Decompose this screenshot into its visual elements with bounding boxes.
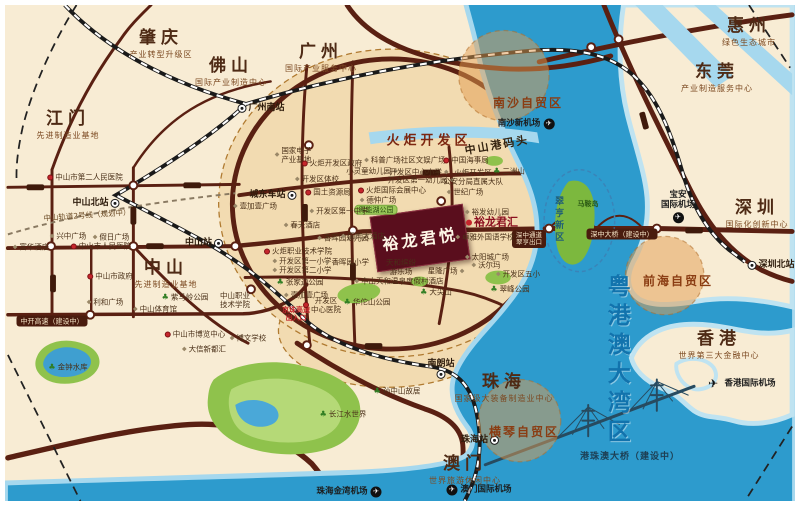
place-diamond-icon: ◆ [360, 197, 365, 203]
area-title: 马鞍岛 [578, 200, 599, 208]
station-marker: 中山站 [185, 238, 223, 248]
station-name: 珠海站 [461, 435, 488, 445]
station-marker: 城东车站 [249, 190, 296, 200]
poi-label: ◆裕发幼儿园 [465, 208, 509, 217]
place-diamond-icon: ◆ [284, 222, 289, 228]
poi-name: 世纪广场 [453, 188, 483, 197]
train-station-icon [214, 239, 223, 248]
poi-name: 孙中山故居 [383, 387, 421, 396]
road-banner: 中开高速（建设中） [17, 315, 88, 326]
poi-name: 德仲广场 [366, 196, 396, 205]
city-label: 东莞产业制造服务中心 [681, 63, 753, 93]
poi-name: 壹加壹广场 [291, 291, 329, 300]
poi-label: 火炬国际会展中心 [358, 186, 426, 195]
city-tagline: 国家级大装备制造业中心 [455, 394, 554, 403]
poi-label: 中山市人民医院 [71, 242, 132, 251]
ftz-label: 横琴自贸区 [489, 426, 559, 440]
city-tagline: 国际产业制造中心 [195, 78, 267, 87]
poi-name: 兴中广场 [56, 232, 86, 241]
poi-label: ◆博文学校 [230, 334, 267, 343]
poi-name: 国宾大酒店 [348, 232, 386, 241]
poi-label: ◆春天酒店 [284, 221, 321, 230]
city-tagline: 国际化创新中心 [726, 220, 789, 229]
station-marker: 深圳北站 [747, 260, 794, 270]
poi-name: 富华酒店 [19, 243, 49, 252]
city-name: 肇庆 [130, 29, 193, 49]
airport-marker: ✈香港国际机场 [704, 376, 775, 393]
poi-label: ◆开发区体校 [295, 175, 339, 184]
poi-label: ♣华佗山公园 [344, 298, 391, 307]
area-title: 翠亨新区 [553, 196, 563, 244]
area-title: 中山港码头 [464, 134, 530, 158]
place-diamond-icon: ◆ [309, 208, 314, 214]
poi-label: ◆国宾大酒店 [341, 232, 385, 241]
airplane-icon: ✈ [704, 376, 721, 393]
location-map: 裕龙君悦 裕龙君汇 肇庆产业转型升级区佛山国际产业制造中心广州国际产业服务中心江… [0, 0, 800, 506]
poi-label: ♣金钟水库 [48, 363, 87, 372]
city-label: 佛山国际产业制造中心 [195, 57, 267, 87]
poi-name: 裕发幼儿园 [472, 208, 510, 217]
place-diamond-icon: ◆ [465, 254, 470, 260]
poi-name: 开发区第一中学 [316, 207, 369, 216]
city-label: 深圳国际化创新中心 [726, 199, 789, 229]
park-icon: ♣ [420, 288, 427, 296]
poi-label: ◆卓雅外国语学校 [455, 233, 514, 242]
area-title: 火炬开发区 [386, 135, 471, 150]
poi-label: 火炬职业技术学院 [264, 247, 332, 256]
poi-name: 翠峰公园 [500, 285, 530, 294]
poi-label: ♣大尖山 [420, 288, 452, 297]
city-name: 东莞 [681, 63, 753, 83]
place-diamond-icon: ◆ [471, 262, 476, 268]
poi-label: 中山市博览中心 [165, 330, 226, 339]
poi-name: 紫马岭公园 [171, 293, 209, 302]
poi-name: 开发区体校 [302, 175, 340, 184]
city-name: 香港 [679, 330, 760, 350]
place-diamond-icon: ◆ [364, 157, 369, 163]
poi-name: 春天酒店 [290, 221, 320, 230]
city-tagline: 先进制造业基地 [135, 280, 198, 289]
poi-name: 壹加壹广场 [240, 202, 278, 211]
train-station-icon [111, 199, 120, 208]
hospital-gov-icon [47, 174, 53, 180]
airport-name-line: 国际机场 [661, 201, 695, 211]
poi-label: 星隆广场◆ [428, 267, 465, 276]
park-icon: ♣ [277, 278, 284, 286]
place-diamond-icon: ◆ [272, 267, 277, 273]
poi-label: ◆开发区五小 [496, 270, 540, 279]
place-diamond-icon: ◆ [354, 278, 359, 284]
place-diamond-icon: ◆ [233, 203, 238, 209]
poi-name: 大尖山 [429, 288, 452, 297]
hospital-gov-icon [443, 157, 449, 163]
place-diamond-icon: ◆ [275, 152, 280, 158]
place-diamond-icon: ◆ [182, 346, 187, 352]
place-diamond-icon: ◆ [455, 234, 460, 240]
poi-name: 开发区第一幼儿园 [388, 176, 448, 185]
city-label: 广州国际产业服务中心 [285, 43, 357, 73]
place-diamond-icon: ◆ [87, 299, 92, 305]
airport-marker: 珠海金湾机场✈ [316, 487, 381, 498]
poi-label: 中山市政府 [87, 272, 133, 281]
area-title: 粤港澳大湾区 [603, 274, 629, 448]
airport-marker: ✈澳门国际机场 [446, 485, 511, 496]
red-dot-icon [466, 220, 472, 226]
poi-label: ◆壹加壹广场 [233, 202, 277, 211]
poi-name: 二洲山 [502, 167, 525, 176]
poi-name-line: 中心医院 [311, 305, 341, 314]
poi-name: 中国海事局 [451, 156, 489, 165]
city-name: 中山 [135, 259, 198, 279]
station-name: 中山北站 [72, 198, 108, 208]
park-icon: ♣ [320, 410, 327, 418]
station-name: 南朗站 [427, 359, 454, 369]
station-name: 深圳北站 [758, 260, 794, 270]
poi-label: ◆开发区第二小学 [272, 266, 331, 275]
city-label: 惠州绿色生态城市 [722, 17, 776, 47]
city-tagline: 世界旅游休闲中心 [429, 476, 501, 485]
city-label: 中山先进制造业基地 [135, 259, 198, 289]
poi-name: 开发区第二小学 [279, 266, 332, 275]
city-label: 香港世界第三大金融中心 [679, 330, 760, 360]
poi-label: ♣张家边公园 [277, 278, 324, 287]
park-icon: ♣ [374, 387, 381, 395]
airplane-icon: ✈ [446, 485, 457, 496]
poi-label: ◆假日广场 [93, 233, 130, 242]
poi-label: 中山职业技术学院 [220, 291, 250, 309]
city-name: 江门 [37, 110, 100, 130]
poi-label: ◆世纪广场 [447, 188, 484, 197]
city-label: 珠海国家级大装备制造业中心 [455, 373, 554, 403]
airport-name: 宝安国际机场 [661, 191, 695, 211]
poi-name: 中山市政府 [95, 272, 133, 281]
poi-label: ◆沃尔玛 [471, 261, 500, 270]
poi-name-line: 游乐场 [386, 267, 416, 276]
poi-name: 博文学校 [236, 334, 266, 343]
airport-name: 珠海金湾机场 [316, 487, 367, 497]
city-tagline: 产业转型升级区 [130, 50, 193, 59]
poi-name: 张家边公园 [286, 278, 324, 287]
road-banner: 港珠澳大桥（建设中） [580, 452, 680, 462]
ftz-label: 前海自贸区 [643, 275, 713, 289]
hospital-gov-icon [71, 243, 77, 249]
poi-label: ◆开发区第一中学 [309, 207, 368, 216]
poi-name: 利和广场 [93, 298, 123, 307]
poi-name-line: 天和缤纷 [386, 258, 416, 267]
city-tagline: 绿色生态城市 [722, 38, 776, 47]
poi-label: 天和缤纷游乐场 [386, 258, 416, 276]
park-icon: ♣ [344, 298, 351, 306]
road-banner: 深中大桥（建设中） [587, 228, 658, 239]
poi-name-line: 公安分局直属大队 [443, 177, 503, 186]
place-diamond-icon: ◆ [13, 244, 18, 250]
hospital-gov-icon [165, 331, 171, 337]
hospital-gov-icon [305, 189, 311, 195]
city-name: 珠海 [455, 373, 554, 393]
poi-label: ♣紫马岭公园 [162, 293, 209, 302]
poi-label: ◆富华酒店 [13, 243, 50, 252]
place-diamond-icon: ◆ [230, 335, 235, 341]
poi-name: 沃尔玛 [478, 261, 501, 270]
city-label: 肇庆产业转型升级区 [130, 29, 193, 59]
park-icon: ♣ [48, 363, 55, 371]
poi-label: ♣孙中山故居 [374, 387, 421, 396]
place-diamond-icon: ◆ [460, 268, 465, 274]
poi-name: 中山体育馆 [140, 305, 178, 314]
poi-label: ◆香晖园小学 [325, 258, 369, 267]
place-diamond-icon: ◆ [93, 234, 98, 240]
park-icon: ♣ [162, 293, 169, 301]
poi-name: 假日广场 [99, 233, 129, 242]
poi-name: 华佗山公园 [353, 298, 391, 307]
airport-name: 香港国际机场 [724, 379, 775, 389]
ftz-label: 南沙自贸区 [493, 97, 563, 111]
place-diamond-icon: ◆ [295, 176, 300, 182]
city-tagline: 先进制造业基地 [37, 131, 100, 140]
place-diamond-icon: ◆ [133, 306, 138, 312]
project-name: 裕龙君悦 [381, 221, 460, 255]
poi-label: ◆中山体育馆 [133, 305, 177, 314]
city-tagline: 产业制造服务中心 [681, 84, 753, 93]
poi-label: ◆兴中广场 [50, 232, 87, 241]
park-icon: ♣ [493, 167, 500, 175]
place-diamond-icon: ◆ [325, 259, 330, 265]
poi-name: 国土资源局 [313, 188, 351, 197]
hospital-gov-icon [264, 248, 270, 254]
poi-label: ◆壹加壹广场 [284, 291, 328, 300]
poi-name: 火炬职业技术学院 [272, 247, 332, 256]
airport-name: 南沙新机场 [498, 119, 541, 129]
hospital-gov-icon [302, 160, 308, 166]
poi-name: 天和缤纷游乐场 [386, 258, 416, 276]
poi-name: 开发区第一小学 [279, 257, 332, 266]
city-label: 澳门世界旅游休闲中心 [429, 455, 501, 485]
poi-name: 中山职业技术学院 [220, 291, 250, 309]
airplane-icon: ✈ [371, 487, 382, 498]
city-name: 深圳 [726, 199, 789, 219]
poi-name: 长江水世界 [329, 410, 367, 419]
place-diamond-icon: ◆ [341, 233, 346, 239]
sister-project-marker: 裕龙君汇 [466, 217, 518, 230]
airport-marker: 宝安国际机场✈ [661, 191, 695, 223]
poi-name: 金钟水库 [58, 363, 88, 372]
poi-label: ◆德仲广场 [360, 196, 397, 205]
poi-name-line: 中山职业 [220, 291, 250, 300]
airplane-icon: ✈ [543, 119, 554, 130]
poi-label: ♣翠峰公园 [490, 285, 529, 294]
poi-name: 中山天和温泉度假村酒店 [361, 277, 444, 286]
poi-name: 火炬国际会展中心 [366, 186, 426, 195]
place-diamond-icon: ◆ [496, 271, 501, 277]
train-station-icon [747, 261, 756, 270]
poi-name: 开发区五小 [503, 270, 541, 279]
hospital-gov-icon [358, 187, 364, 193]
city-name: 澳门 [429, 455, 501, 475]
train-station-icon [436, 370, 445, 379]
park-icon: ♣ [490, 285, 497, 293]
place-diamond-icon: ◆ [284, 292, 289, 298]
station-name: 城东车站 [249, 190, 285, 200]
airplane-icon: ✈ [672, 212, 683, 223]
map-labels: 裕龙君悦 裕龙君汇 肇庆产业转型升级区佛山国际产业制造中心广州国际产业服务中心江… [5, 5, 795, 501]
hospital-gov-icon [87, 273, 93, 279]
sister-project-name: 裕龙君汇 [474, 217, 518, 230]
station-marker: 南朗站 [427, 359, 454, 379]
poi-name-line: 技术学院 [220, 300, 250, 309]
place-diamond-icon: ◆ [50, 233, 55, 239]
poi-label: 国土资源局 [305, 188, 351, 197]
poi-label: ◆中山天和温泉度假村酒店 [354, 277, 443, 286]
place-diamond-icon: ◆ [272, 258, 277, 264]
place-diamond-icon: ◆ [317, 235, 322, 241]
hospital-gov-icon [303, 302, 309, 308]
poi-label: 中山市第二人民医院 [47, 173, 123, 182]
road-banner-line: 出入口 [282, 314, 310, 322]
poi-label: ♣长江水世界 [320, 410, 367, 419]
poi-name: 大信新都汇 [189, 345, 227, 354]
poi-name: 香晖园小学 [332, 258, 370, 267]
station-marker: 中山北站 [72, 198, 119, 208]
poi-name: 中山市第二人民医院 [55, 173, 123, 182]
city-label: 江门先进制造业基地 [37, 110, 100, 140]
city-name: 广州 [285, 43, 357, 63]
poi-name: 中山市人民医院 [79, 242, 132, 251]
place-diamond-icon: ◆ [465, 209, 470, 215]
place-diamond-icon: ◆ [447, 189, 452, 195]
poi-name: 小灵童幼儿园 [346, 167, 391, 176]
city-tagline: 世界第三大金融中心 [679, 351, 760, 360]
poi-label: ◆开发区第一小学 [272, 257, 331, 266]
city-name: 佛山 [195, 57, 267, 77]
road-banner: 深中通道翠亨出口 [512, 230, 546, 248]
poi-label: ♣二洲山 [493, 167, 525, 176]
road-banner-line: 翠亨出口 [516, 239, 542, 246]
train-station-icon [237, 104, 246, 113]
poi-name: 科普广场社区文娱广场 [371, 156, 446, 165]
city-name: 惠州 [722, 17, 776, 37]
poi-label: ◆大信新都汇 [182, 345, 226, 354]
poi-label: ◆利和广场 [87, 298, 124, 307]
station-name: 中山站 [185, 238, 212, 248]
station-name: 广州南站 [248, 103, 284, 113]
train-station-icon [288, 191, 297, 200]
station-marker: 广州南站 [237, 103, 284, 113]
poi-name: 星隆广场 [428, 267, 458, 276]
city-tagline: 国际产业服务中心 [285, 64, 357, 73]
road-banner: 中山轨道2号线（规划中） [43, 209, 131, 224]
poi-label: ◆科普广场社区文娱广场 [364, 156, 446, 165]
airport-marker: 南沙新机场✈ [498, 119, 555, 130]
poi-name-line: 国家电子 [281, 146, 311, 155]
airport-name: 澳门国际机场 [460, 485, 511, 495]
poi-label: 中国海事局 [443, 156, 489, 165]
poi-name: 卓雅外国语学校 [462, 233, 515, 242]
poi-name: 中山市博览中心 [173, 330, 226, 339]
